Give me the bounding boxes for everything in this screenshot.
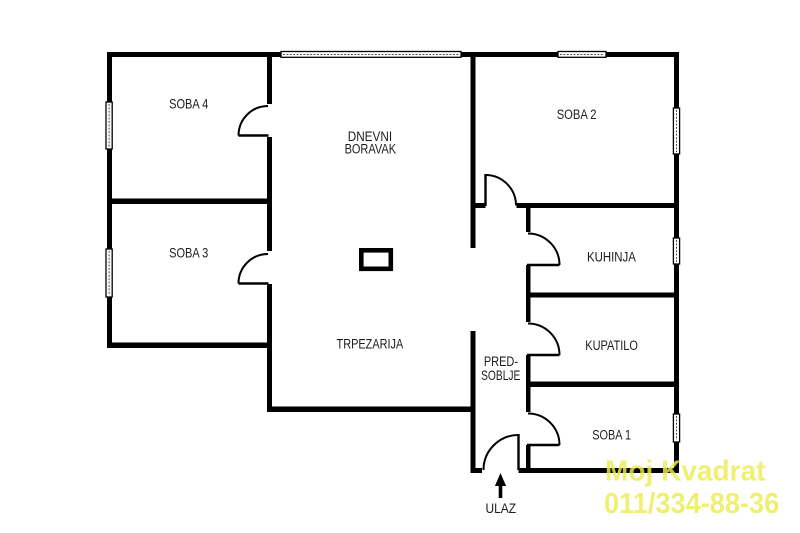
svg-text:SOBA 3: SOBA 3 — [169, 245, 208, 261]
svg-text:SOBA 1: SOBA 1 — [592, 427, 631, 443]
svg-text:Moj Kvadrat: Moj Kvadrat — [605, 455, 766, 488]
svg-text:BORAVAK: BORAVAK — [345, 141, 397, 157]
svg-text:SOBA 4: SOBA 4 — [169, 96, 208, 112]
svg-text:011/334-88-36: 011/334-88-36 — [604, 487, 779, 519]
svg-text:KUHINJA: KUHINJA — [587, 248, 636, 264]
svg-text:TRPEZARIJA: TRPEZARIJA — [337, 336, 404, 352]
svg-text:SOBLJE: SOBLJE — [481, 368, 520, 384]
svg-text:SOBA 2: SOBA 2 — [557, 107, 597, 122]
svg-text:ULAZ: ULAZ — [486, 500, 517, 516]
svg-text:KUPATILO: KUPATILO — [585, 338, 638, 354]
